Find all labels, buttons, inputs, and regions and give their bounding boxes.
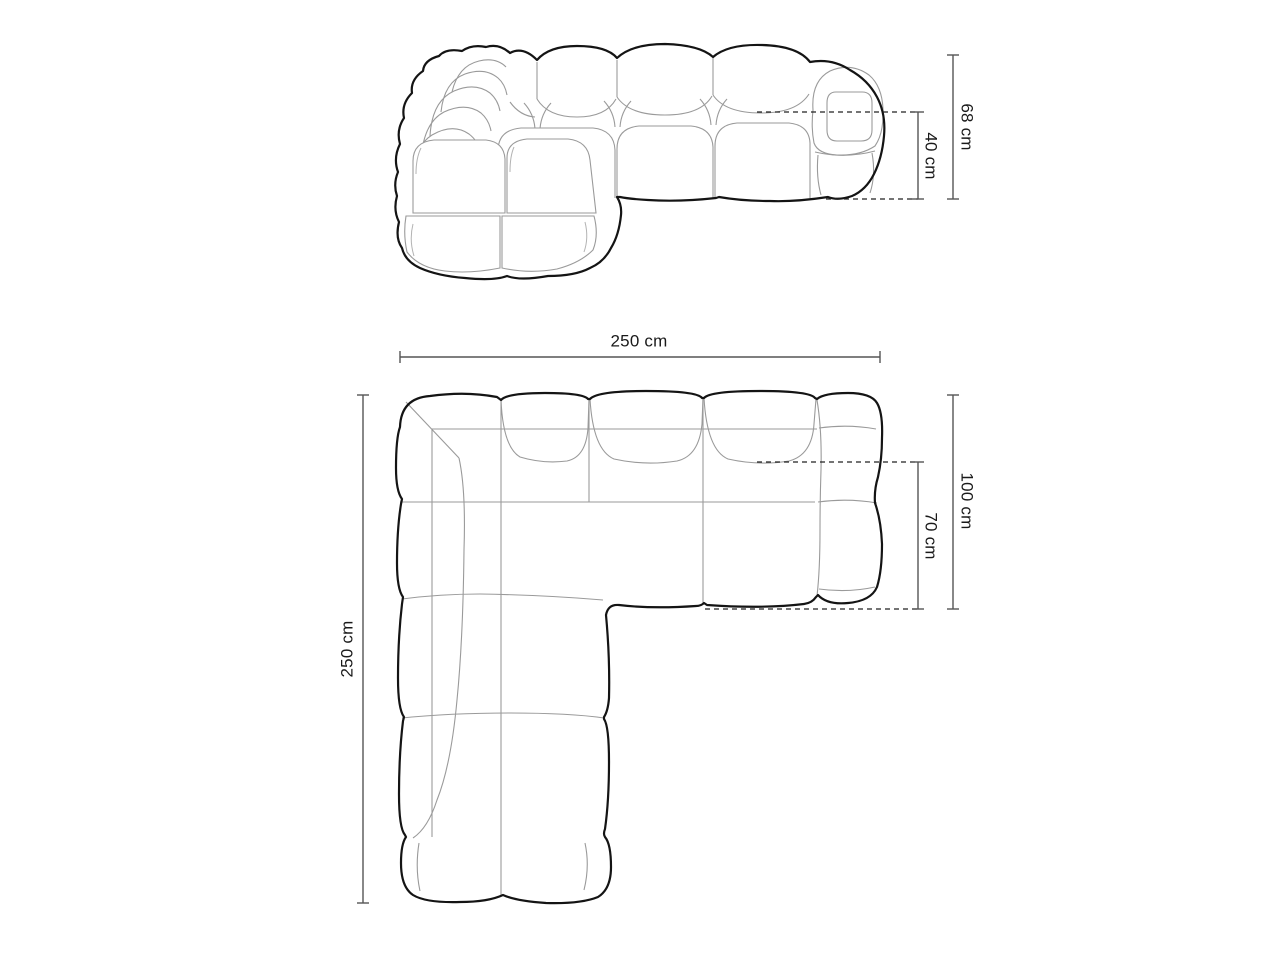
plan-view-drawing	[357, 351, 959, 903]
elevation-total-height-label: 68 cm	[959, 103, 976, 150]
plan-width-label: 250 cm	[611, 333, 668, 350]
plan-length-label: 250 cm	[339, 621, 356, 678]
plan-sofa-body	[396, 391, 882, 903]
plan-total-depth-label: 100 cm	[959, 473, 976, 530]
elevation-view-drawing	[395, 44, 959, 279]
dimension-diagram-page: 68 cm 40 cm 250 cm 250 cm 100 cm 70 cm	[0, 0, 1280, 960]
elevation-chaise-cushions	[405, 139, 597, 272]
plan-seat-depth-label: 70 cm	[923, 512, 940, 559]
elevation-seat-height-label: 40 cm	[923, 132, 940, 179]
sofa-dimension-drawing	[0, 0, 1280, 960]
